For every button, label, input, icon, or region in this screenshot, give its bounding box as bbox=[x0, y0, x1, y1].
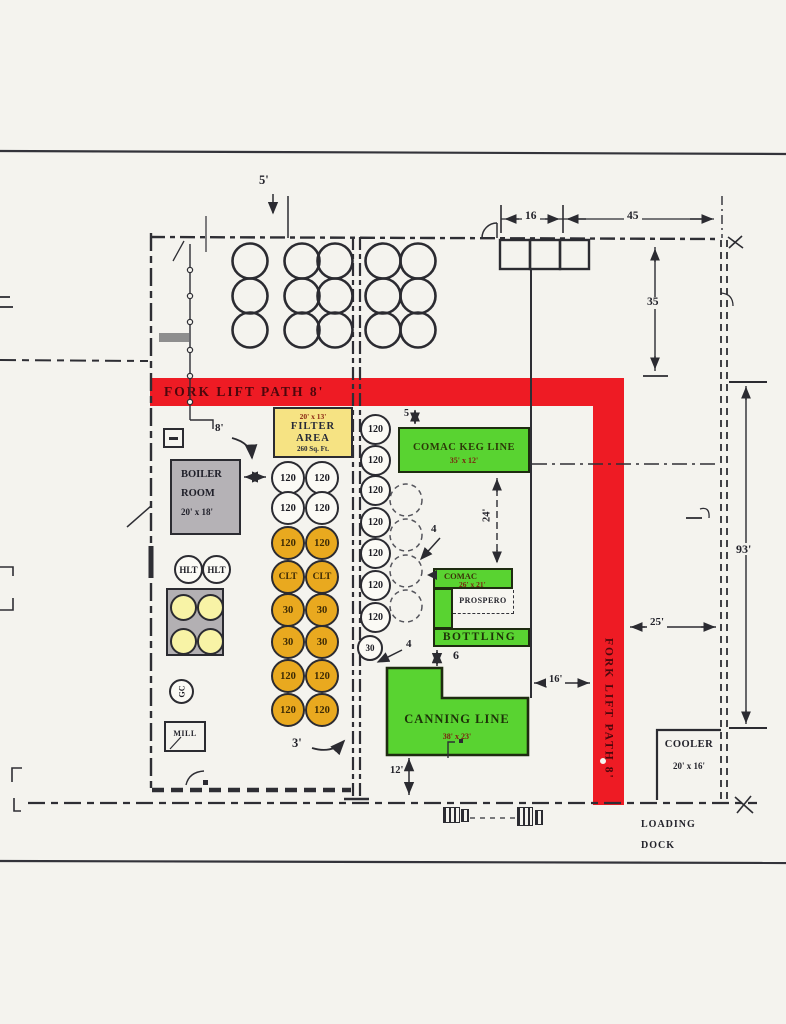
tank-120: 120 bbox=[305, 491, 339, 525]
future-tank-outline bbox=[390, 519, 422, 551]
tank-120: 120 bbox=[305, 659, 339, 693]
tank-120: 120 bbox=[305, 526, 339, 560]
tank-120-label: 120 bbox=[280, 503, 296, 514]
tank-30-label: 30 bbox=[317, 605, 328, 616]
dim-16ft: 16' bbox=[546, 675, 565, 686]
fermenter-tank-outline bbox=[401, 244, 436, 279]
dim-93ft: 93' bbox=[733, 543, 754, 555]
dim-3ft: 3' bbox=[292, 737, 302, 750]
fermenter-tank-outline bbox=[233, 279, 268, 314]
tank-120-label: 120 bbox=[314, 671, 330, 682]
boiler-name-line2: ROOM bbox=[181, 489, 215, 500]
dock-leveler bbox=[443, 807, 460, 823]
future-tank-outline bbox=[390, 484, 422, 516]
dim-4-upper: 4 bbox=[431, 524, 437, 535]
fermenter-tank-outline bbox=[285, 313, 320, 348]
cooler-size: 20' x 16' bbox=[658, 762, 720, 771]
tank-120-label: 120 bbox=[280, 671, 296, 682]
tank-120-label: 120 bbox=[368, 424, 383, 435]
tank-120: 120 bbox=[305, 461, 339, 495]
tank-30-label: 30 bbox=[283, 637, 294, 648]
tank-120-label: 120 bbox=[368, 517, 383, 528]
tank-120-label: 120 bbox=[280, 705, 296, 716]
filter-name-line2: AREA bbox=[275, 434, 351, 445]
small-utility-box bbox=[163, 428, 184, 448]
tank-30-label: 30 bbox=[317, 637, 328, 648]
filter-area-room: 20' x 13' FILTER AREA 260 Sq. Ft. bbox=[273, 407, 353, 458]
filter-size-label: 20' x 13' bbox=[275, 413, 351, 421]
boiler-name-line1: BOILER bbox=[181, 470, 222, 481]
dim-25ft: 25' bbox=[647, 617, 667, 628]
forklift-path-horizontal-label: FORK LIFT PATH 8' bbox=[164, 385, 324, 399]
page-lines bbox=[0, 151, 786, 863]
tank-clt: CLT bbox=[271, 560, 305, 594]
comac-bottler-size: 26' x 21' bbox=[459, 581, 486, 589]
hlt-tank-label: HLT bbox=[179, 565, 197, 575]
tank-120-label: 120 bbox=[368, 455, 383, 466]
prospero-unit: PROSPERO bbox=[453, 590, 514, 614]
keg-line-name: COMAC KEG LINE bbox=[398, 443, 530, 454]
tank-120: 120 bbox=[271, 659, 305, 693]
hlt-tank: HLT bbox=[202, 555, 231, 584]
fermenter-tank-outline bbox=[366, 244, 401, 279]
tank-120-label: 120 bbox=[368, 548, 383, 559]
dim-45: 45 bbox=[624, 211, 642, 223]
tank-120: 120 bbox=[360, 445, 391, 476]
brew-kettle bbox=[170, 594, 197, 621]
boiler-size-label: 20' x 18' bbox=[181, 508, 213, 517]
tank-120: 120 bbox=[360, 570, 391, 601]
storage-bays bbox=[500, 240, 589, 269]
dim-5: 5 bbox=[404, 409, 409, 419]
utility-box-dash bbox=[169, 437, 178, 440]
dim-35: 35 bbox=[644, 297, 662, 309]
tank-120: 120 bbox=[360, 475, 391, 506]
fermenter-tank-outline bbox=[366, 279, 401, 314]
mill-room: MILL bbox=[164, 721, 206, 752]
tank-120-label: 120 bbox=[368, 485, 383, 496]
filter-name-line1: FILTER bbox=[275, 422, 351, 433]
tank-120: 120 bbox=[271, 491, 305, 525]
gc-vessel-label: GC bbox=[177, 686, 186, 698]
tank-120-label: 120 bbox=[368, 580, 383, 591]
fermenter-tank-outline bbox=[233, 244, 268, 279]
cooler-name: COOLER bbox=[658, 740, 720, 751]
tank-120-label: 120 bbox=[280, 473, 296, 484]
tank-clt-label: CLT bbox=[279, 572, 298, 582]
tank-120-label: 120 bbox=[280, 538, 296, 549]
dim-door-top: 5' bbox=[259, 174, 269, 187]
dim-4-lower: 4 bbox=[406, 639, 412, 650]
tank-120-label: 120 bbox=[368, 612, 383, 623]
tank-120: 120 bbox=[360, 414, 391, 445]
tank-120: 120 bbox=[360, 538, 391, 569]
canning-line-size: 38' x 23' bbox=[392, 733, 522, 741]
dim-6: 6 bbox=[453, 649, 459, 661]
fermenter-tank-outline bbox=[401, 279, 436, 314]
fermenter-tank-outline bbox=[285, 279, 320, 314]
tank-clt: CLT bbox=[305, 560, 339, 594]
fermenter-tank-outlines bbox=[233, 244, 436, 348]
hlt-tank-label: HLT bbox=[207, 565, 225, 575]
tank-120-label: 120 bbox=[314, 705, 330, 716]
tank-30-small-label: 30 bbox=[366, 643, 375, 653]
plan-linework bbox=[0, 0, 786, 1024]
dock-leveler bbox=[517, 807, 533, 826]
loading-dock-line1: LOADING bbox=[641, 820, 696, 830]
tank-30: 30 bbox=[271, 625, 305, 659]
gc-vessel: GC bbox=[169, 679, 194, 704]
tank-30: 30 bbox=[305, 593, 339, 627]
filter-sqft-label: 260 Sq. Ft. bbox=[275, 446, 351, 453]
tank-120: 120 bbox=[271, 461, 305, 495]
brew-kettle bbox=[197, 594, 224, 621]
boiler-room: BOILER ROOM 20' x 18' bbox=[170, 459, 241, 535]
tank-30-label: 30 bbox=[283, 605, 294, 616]
future-tank-outline bbox=[390, 590, 422, 622]
fermenter-tank-outline bbox=[233, 313, 268, 348]
brew-kettle bbox=[197, 628, 224, 655]
tank-120: 120 bbox=[305, 693, 339, 727]
fermenter-tank-outline bbox=[401, 313, 436, 348]
tank-30: 30 bbox=[305, 625, 339, 659]
fermenter-tank-outline bbox=[285, 244, 320, 279]
bottling-label: BOTTLING bbox=[433, 632, 526, 644]
tank-clt-label: CLT bbox=[313, 572, 332, 582]
tank-120: 120 bbox=[360, 602, 391, 633]
tank-120-label: 120 bbox=[314, 538, 330, 549]
canning-line-name: CANNING LINE bbox=[392, 713, 522, 726]
mill-label: MILL bbox=[166, 730, 204, 738]
prospero-label: PROSPERO bbox=[453, 597, 513, 605]
tank-120: 120 bbox=[271, 693, 305, 727]
dim-24ft: 24' bbox=[482, 509, 493, 522]
dim-16: 16 bbox=[522, 211, 540, 223]
dim-12ft: 12' bbox=[390, 766, 403, 777]
forklift-path-horizontal: FORK LIFT PATH 8' bbox=[150, 378, 624, 406]
future-tank-outlines bbox=[390, 484, 422, 622]
tank-120-label: 120 bbox=[314, 473, 330, 484]
dock-leveler bbox=[461, 809, 469, 822]
future-tank-outline bbox=[390, 555, 422, 587]
fermenter-tank-outline bbox=[318, 313, 353, 348]
scan-white-dot bbox=[600, 758, 606, 764]
bottling-left-bar bbox=[433, 588, 453, 629]
tank-30: 30 bbox=[271, 593, 305, 627]
brewery-floor-plan: FORK LIFT PATH 8' FORK LIFT PATH 8' 20' … bbox=[0, 0, 786, 1024]
loading-dock-line2: DOCK bbox=[641, 841, 675, 851]
dock-leveler bbox=[535, 810, 543, 825]
tank-120-label: 120 bbox=[314, 503, 330, 514]
hlt-tank: HLT bbox=[174, 555, 203, 584]
tank-120: 120 bbox=[360, 507, 391, 538]
brew-kettle bbox=[170, 628, 197, 655]
tank-30-small: 30 bbox=[357, 635, 383, 661]
fermenter-tank-outline bbox=[318, 244, 353, 279]
dim-8ft: 8' bbox=[215, 423, 224, 434]
tank-120: 120 bbox=[271, 526, 305, 560]
forklift-path-vertical: FORK LIFT PATH 8' bbox=[593, 406, 624, 805]
keg-line-size: 35' x 12' bbox=[398, 457, 530, 465]
fermenter-tank-outline bbox=[318, 279, 353, 314]
fermenter-tank-outline bbox=[366, 313, 401, 348]
